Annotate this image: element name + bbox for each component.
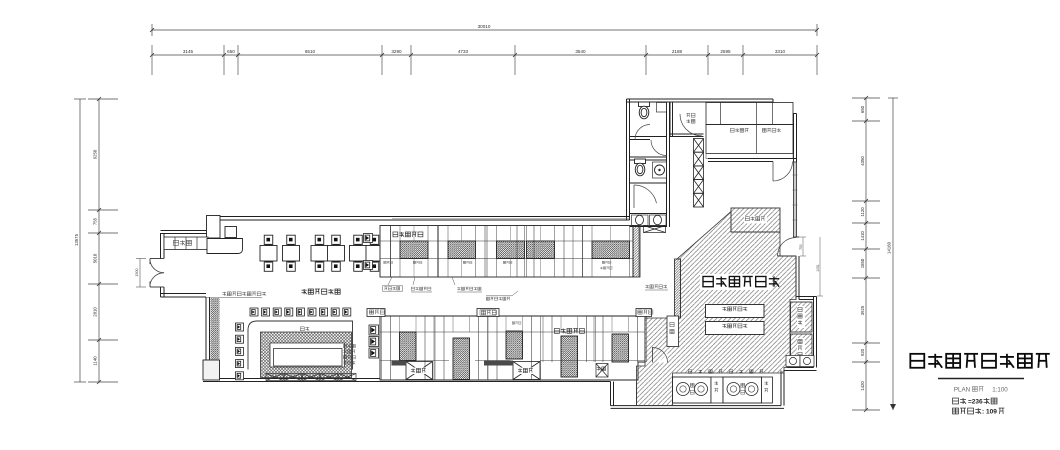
svg-text:PLAN: PLAN (954, 387, 970, 394)
svg-text:3145: 3145 (183, 49, 194, 54)
svg-text:3540: 3540 (575, 49, 586, 54)
svg-text:9250: 9250 (93, 149, 98, 159)
svg-text:650: 650 (227, 49, 235, 54)
svg-text:2188: 2188 (672, 49, 683, 54)
svg-text:1140: 1140 (93, 356, 98, 366)
svg-text:13575: 13575 (74, 233, 79, 246)
svg-text:1420: 1420 (860, 381, 865, 391)
svg-text:=236: =236 (968, 399, 983, 406)
svg-text:3290: 3290 (391, 49, 402, 54)
svg-text:5010: 5010 (93, 253, 98, 263)
svg-text:1500: 1500 (135, 269, 139, 277)
svg-text:6510: 6510 (305, 49, 316, 54)
svg-text:3310: 3310 (775, 49, 786, 54)
svg-text:1:100: 1:100 (992, 387, 1008, 394)
svg-text:1850: 1850 (860, 258, 865, 268)
svg-text:750: 750 (799, 244, 803, 250)
svg-text:: 109: : 109 (982, 409, 997, 416)
svg-text:4733: 4733 (458, 49, 469, 54)
svg-text:920: 920 (860, 348, 865, 356)
svg-text:3925: 3925 (860, 305, 865, 315)
svg-text:1120: 1120 (860, 207, 865, 217)
svg-text:2810: 2810 (93, 307, 98, 317)
svg-text:1410: 1410 (860, 231, 865, 241)
svg-text:2595: 2595 (720, 49, 731, 54)
svg-text:4350: 4350 (860, 156, 865, 166)
svg-text:755: 755 (93, 217, 98, 225)
svg-text:650: 650 (860, 105, 865, 113)
svg-text:14160: 14160 (887, 241, 892, 254)
svg-text:30010: 30010 (478, 24, 491, 29)
svg-text:1051: 1051 (816, 264, 820, 272)
